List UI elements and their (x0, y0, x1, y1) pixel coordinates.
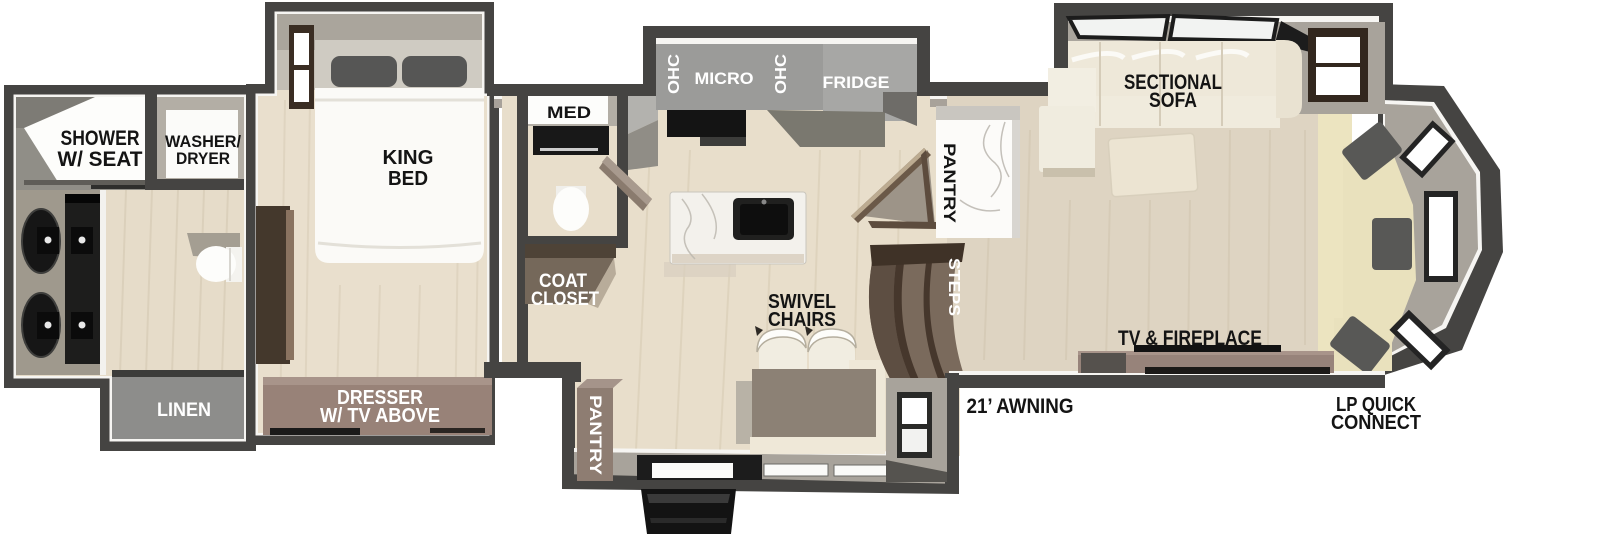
svg-text:W/ TV ABOVE: W/ TV ABOVE (320, 405, 440, 427)
svg-text:LINEN: LINEN (157, 400, 211, 421)
svg-text:W/ SEAT: W/ SEAT (58, 148, 143, 171)
svg-text:SHOWER: SHOWER (61, 127, 140, 150)
svg-text:FRIDGE: FRIDGE (823, 73, 890, 92)
svg-text:TV & FIREPLACE: TV & FIREPLACE (1118, 327, 1262, 350)
svg-text:PANTRY: PANTRY (586, 395, 605, 476)
svg-text:CLOSET: CLOSET (531, 289, 599, 310)
svg-text:STEPS: STEPS (945, 258, 962, 316)
svg-text:BED: BED (388, 168, 428, 190)
svg-text:CONNECT: CONNECT (1331, 412, 1421, 434)
svg-text:MICRO: MICRO (695, 69, 754, 88)
svg-text:CHAIRS: CHAIRS (768, 309, 836, 331)
svg-text:PANTRY: PANTRY (940, 143, 959, 224)
svg-text:MED: MED (547, 103, 591, 122)
svg-text:OHC: OHC (666, 54, 683, 94)
svg-text:DRYER: DRYER (176, 149, 230, 168)
svg-text:OHC: OHC (773, 54, 790, 94)
svg-text:KING: KING (383, 147, 434, 169)
svg-text:SOFA: SOFA (1149, 89, 1197, 112)
svg-text:21’ AWNING: 21’ AWNING (967, 395, 1074, 418)
